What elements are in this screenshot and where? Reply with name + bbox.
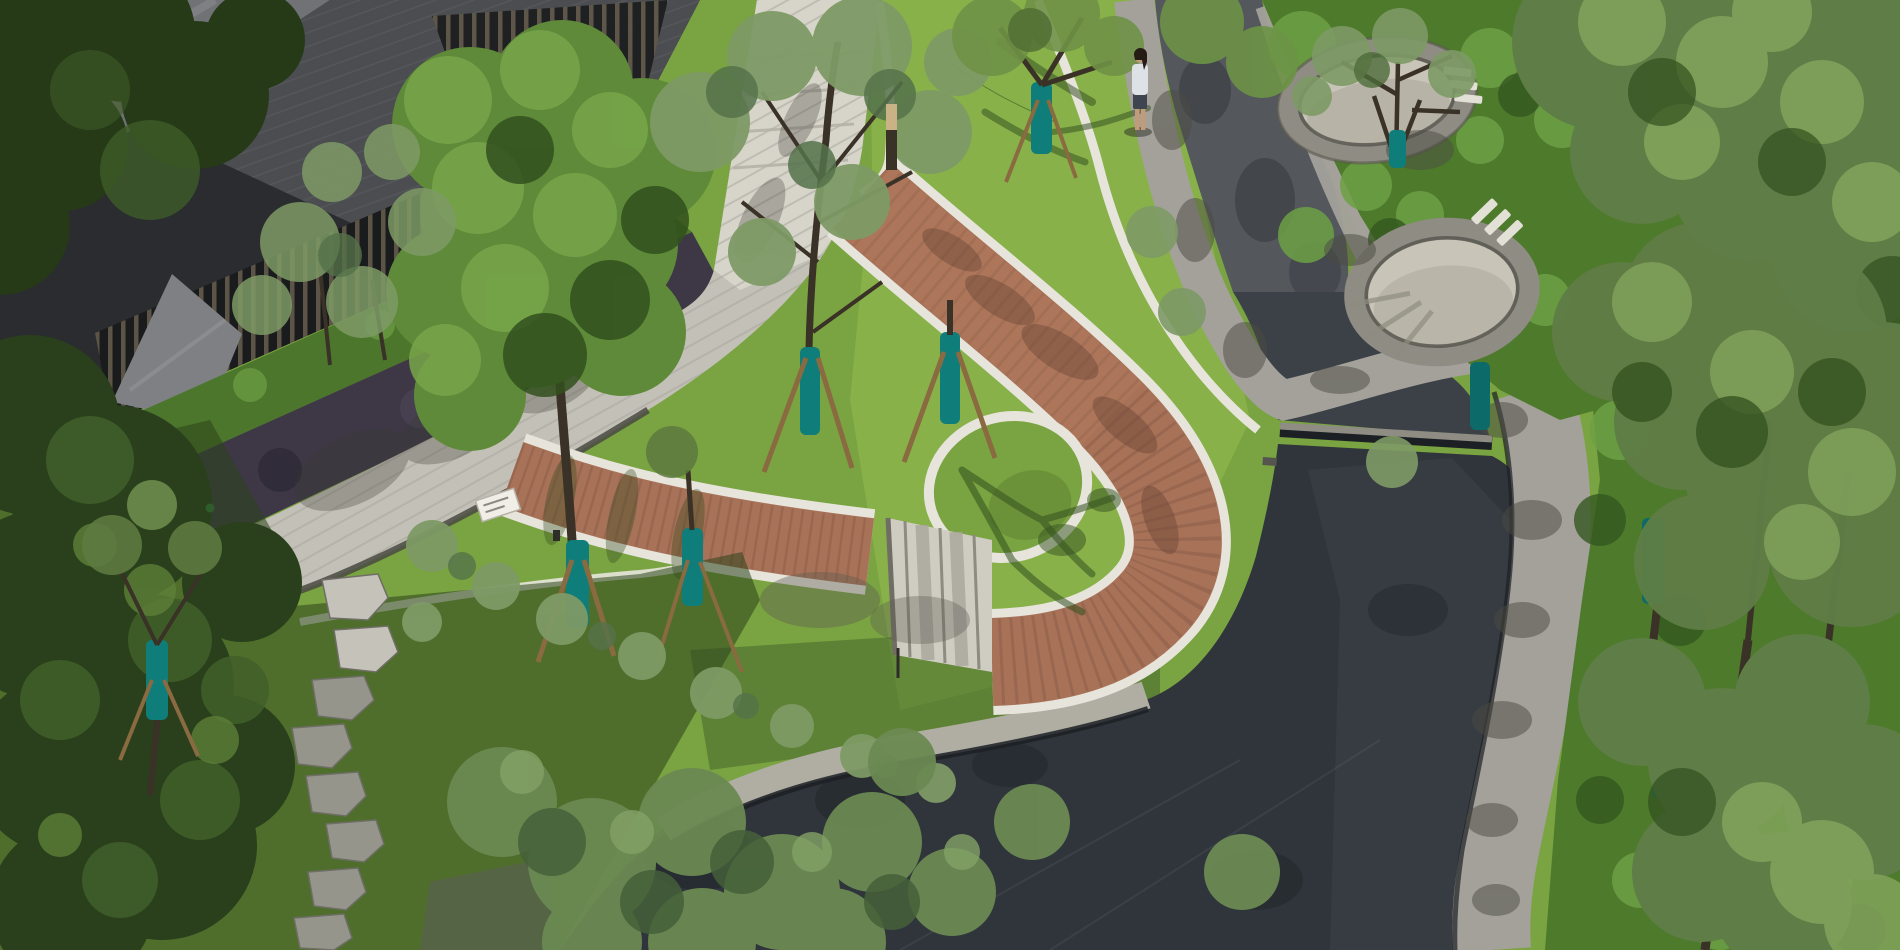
- aerial-photo-stage: [0, 0, 1900, 950]
- ground-spotlight: [206, 504, 215, 513]
- person-shirt: [1132, 64, 1148, 95]
- courtyard-aerial-photo: [0, 0, 1900, 950]
- bollard-light: [886, 104, 897, 170]
- lawn-fixture: [553, 530, 560, 541]
- path-drain: [1262, 457, 1277, 466]
